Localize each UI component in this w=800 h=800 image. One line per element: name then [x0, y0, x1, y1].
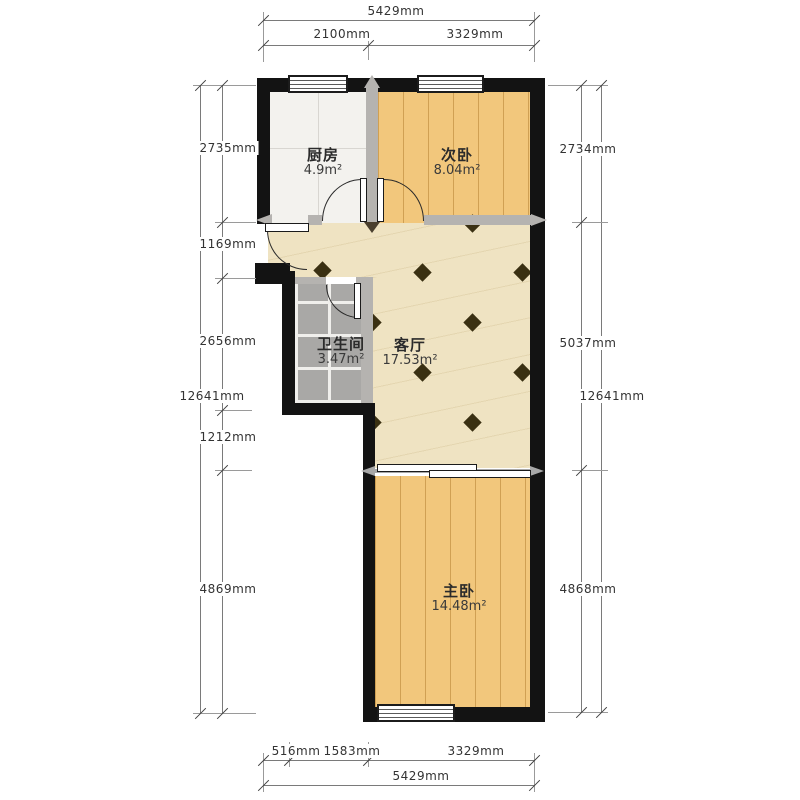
- divider-top-arrow: [364, 75, 380, 88]
- dim-label-top-seg0: 2100mm: [312, 27, 373, 41]
- dim-label-bottom-seg2: 3329mm: [446, 744, 507, 758]
- master-bedroom-name: 主卧: [431, 583, 486, 600]
- kitchen-area: 4.9m²: [304, 164, 343, 179]
- hall-wall-segment-b: [424, 215, 531, 225]
- bathroom-door-leaf: [354, 283, 361, 319]
- dim-label-right-seg1: 5037mm: [558, 336, 619, 350]
- dim-label-top-total: 5429mm: [366, 4, 427, 18]
- living-room-floor: [373, 277, 530, 468]
- sliding-door-panel-2: [429, 470, 531, 478]
- second-bedroom-window: [417, 75, 484, 93]
- living-room-label: 客厅 17.53m²: [382, 337, 437, 369]
- dim-label-top-seg1: 3329mm: [445, 27, 506, 41]
- bathroom-name: 卫生间: [317, 336, 365, 353]
- dim-label-bottom-total: 5429mm: [391, 769, 452, 783]
- dim-label-left-seg3: 1212mm: [198, 430, 259, 444]
- left-wall-upper: [257, 78, 270, 224]
- dim-line: [263, 760, 534, 761]
- kitchen-label: 厨房 4.9m²: [304, 147, 343, 179]
- dim-label-right-seg2: 4868mm: [558, 582, 619, 596]
- dim-label-right-seg0: 2734mm: [558, 142, 619, 156]
- dim-label-left-seg1: 1169mm: [198, 237, 259, 251]
- dim-label-bottom-seg1: 1583mm: [322, 744, 383, 758]
- hall-wall-right-arrow: [531, 214, 547, 226]
- dim-line: [263, 45, 534, 46]
- dim-extension: [572, 470, 608, 471]
- dim-extension: [193, 85, 256, 86]
- entry-door-leaf: [265, 223, 309, 232]
- dim-extension: [368, 38, 369, 60]
- hall-wall-segment-a: [308, 215, 322, 225]
- bathroom-bottom-wall: [282, 403, 375, 415]
- dim-label-left-seg2: 2656mm: [198, 334, 259, 348]
- kitchen-window: [288, 75, 348, 93]
- master-bedroom-window: [377, 704, 455, 722]
- dim-label-right-total: 12641mm: [577, 389, 646, 403]
- master-left-wall: [363, 403, 375, 722]
- master-bedroom-label: 主卧 14.48m²: [431, 583, 486, 615]
- dim-extension: [572, 222, 608, 223]
- dim-line: [263, 20, 534, 21]
- second-bedroom-area: 8.04m²: [434, 164, 481, 179]
- divider-bottom-arrow: [364, 222, 380, 233]
- dim-label-bottom-seg0: 516mm: [270, 744, 323, 758]
- sliding-door-right-arrow: [530, 466, 544, 476]
- dim-label-left-seg4: 4869mm: [198, 582, 259, 596]
- kitchen-door-leaf: [360, 178, 367, 222]
- bathroom-area: 3.47m²: [317, 353, 365, 368]
- master-bedroom-area: 14.48m²: [431, 600, 486, 615]
- second-bedroom-name: 次卧: [434, 147, 481, 164]
- living-room-area: 17.53m²: [382, 354, 437, 369]
- dim-line: [263, 785, 534, 786]
- second-bedroom-label: 次卧 8.04m²: [434, 147, 481, 179]
- bathroom-label: 卫生间 3.47m²: [317, 336, 365, 368]
- right-wall: [530, 78, 545, 722]
- dim-label-left-total: 12641mm: [177, 389, 246, 403]
- sliding-door-left-arrow: [361, 466, 375, 476]
- dim-label-left-seg0: 2735mm: [198, 141, 259, 155]
- dim-extension: [193, 713, 256, 714]
- bathroom-door-gap: [326, 277, 356, 284]
- bathroom-left-wall: [282, 271, 295, 415]
- living-room-name: 客厅: [382, 337, 437, 354]
- second-bedroom-door-leaf: [377, 178, 384, 222]
- floorplan-canvas: 厨房 4.9m² 次卧 8.04m² 卫生间 3.47m² 客厅 17.53m²…: [0, 0, 800, 800]
- kitchen-name: 厨房: [304, 147, 343, 164]
